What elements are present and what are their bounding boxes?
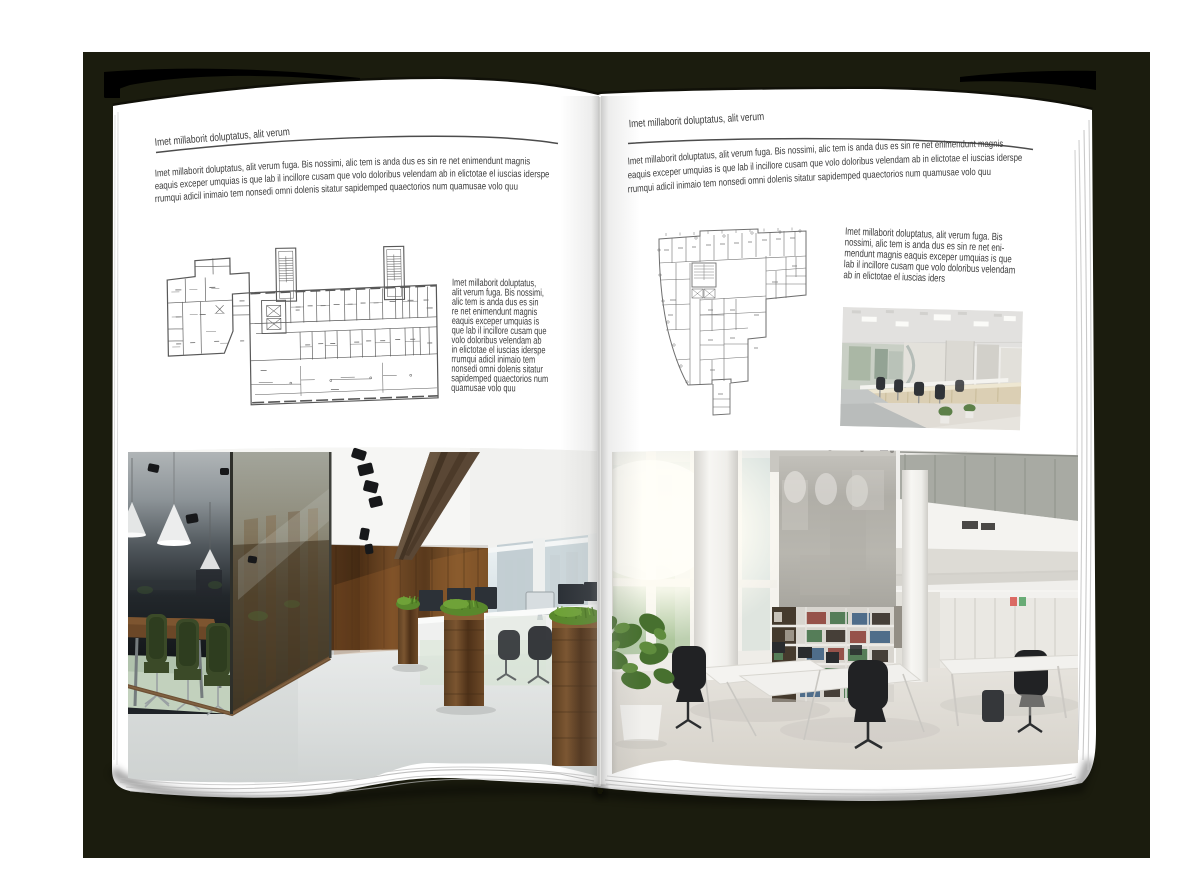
svg-text:quamusae volo quu: quamusae volo quu [451,382,516,394]
